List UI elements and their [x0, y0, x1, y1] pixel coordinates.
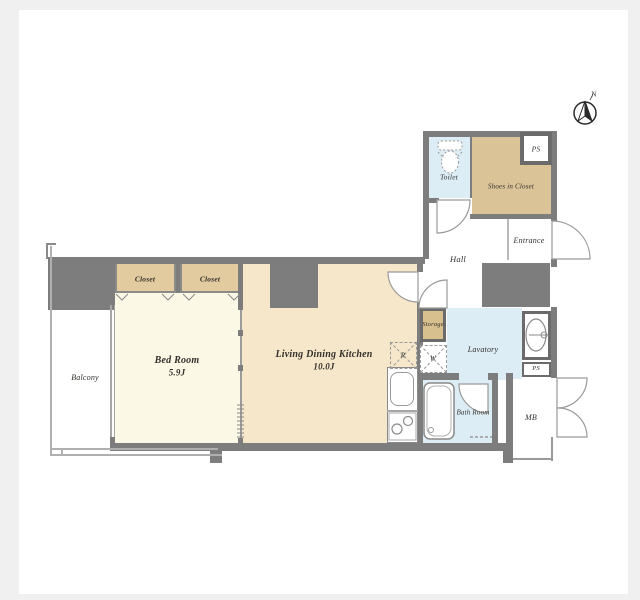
fixture-overlay: [0, 0, 640, 600]
compass-icon: [574, 94, 596, 124]
toilet-label: Toilet: [440, 173, 458, 181]
shoes-in-closet-label: Shoes in Closet: [488, 184, 534, 191]
mb-label: MB: [525, 414, 537, 422]
bedroom-label: Bed Room: [155, 356, 200, 366]
ps-lower-label: PS: [532, 366, 540, 373]
ldk-size-label: 10.0J: [313, 363, 334, 372]
closet-fold-marks: [116, 294, 240, 300]
lavatory-door-arc: [419, 280, 447, 308]
compass-north-label: N: [591, 92, 596, 99]
closet-left-label: Closet: [135, 275, 155, 283]
appliance-diagonals: [390, 342, 447, 373]
entrance-door-arc: [552, 221, 590, 259]
entrance-label: Entrance: [514, 237, 545, 245]
mb-door-arc-top: [557, 378, 587, 408]
bedroom-size-label: 5.9J: [169, 369, 186, 378]
toilet-door-arc: [437, 200, 470, 233]
lavatory-basin-icon: [526, 319, 549, 351]
stove-icon: [389, 413, 416, 440]
partition-hatch: [237, 405, 244, 437]
ldk-door-arc: [388, 272, 418, 302]
hall-label: Hall: [450, 255, 466, 264]
balcony-label: Balcony: [71, 374, 99, 382]
storage-label: Storage: [422, 322, 444, 329]
bathroom-label: Bath Room: [456, 410, 489, 417]
mb-door-arc-bottom: [557, 408, 587, 437]
washer-label: W: [430, 356, 436, 363]
floorplan-canvas: N Closet Closet Bed Room 5.9J Living Din…: [0, 0, 640, 600]
lavatory-label: Lavatory: [468, 346, 499, 354]
closet-right-label: Closet: [200, 275, 220, 283]
ldk-label: Living Dining Kitchen: [276, 350, 373, 360]
ps-upper-label: PS: [532, 145, 541, 153]
refrigerator-label: R: [401, 353, 405, 360]
toilet-icon: [438, 141, 462, 173]
